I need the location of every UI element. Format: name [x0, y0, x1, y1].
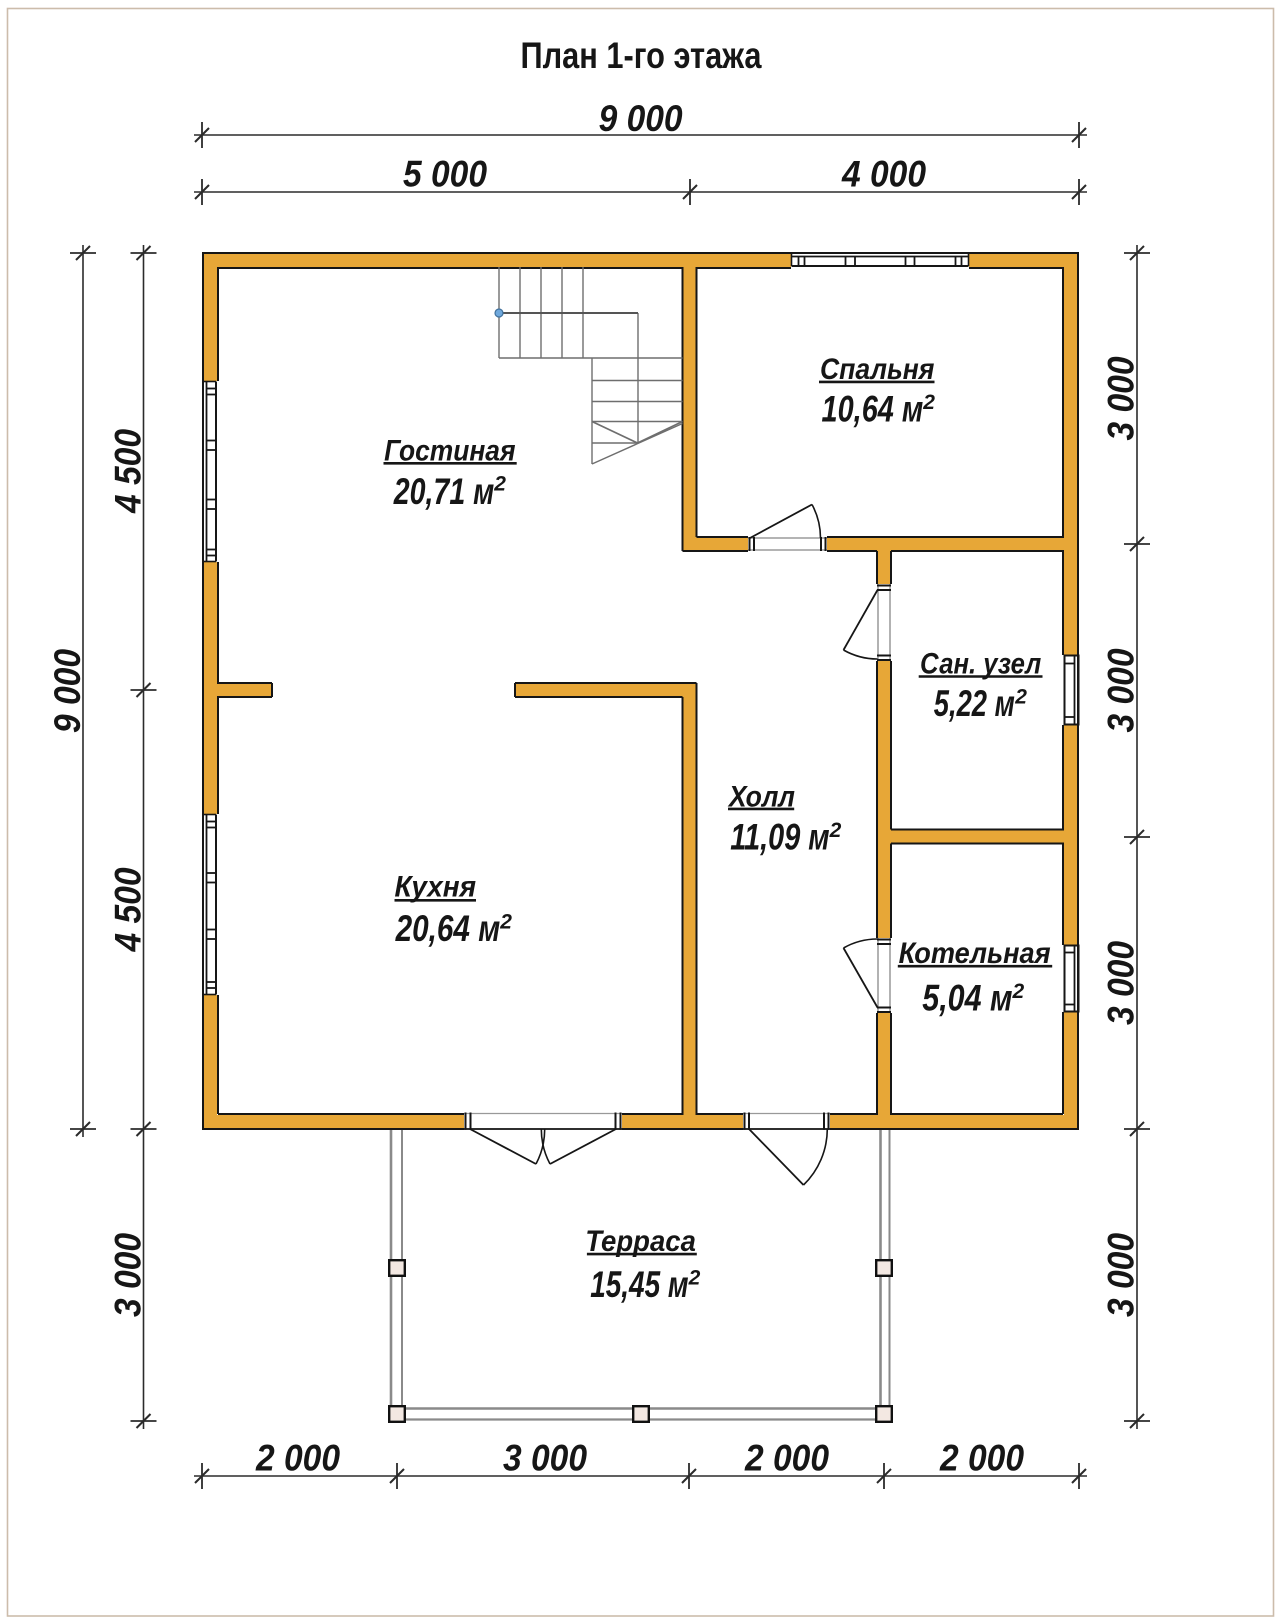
svg-text:3 000: 3 000 — [1101, 941, 1142, 1025]
svg-text:15,45 м: 15,45 м — [590, 1264, 688, 1305]
svg-text:9 000: 9 000 — [47, 649, 88, 733]
svg-text:Котельная: Котельная — [899, 937, 1051, 970]
svg-text:5,04 м: 5,04 м — [922, 977, 1012, 1018]
svg-text:2: 2 — [829, 819, 842, 842]
svg-text:20,71 м: 20,71 м — [393, 471, 494, 512]
svg-text:10,64 м: 10,64 м — [822, 389, 924, 430]
svg-text:4 500: 4 500 — [108, 429, 149, 514]
svg-text:3 000: 3 000 — [108, 1233, 149, 1317]
svg-text:5 000: 5 000 — [403, 154, 487, 195]
svg-text:2: 2 — [922, 391, 935, 414]
svg-text:20,64 м: 20,64 м — [395, 908, 500, 949]
svg-text:2: 2 — [493, 473, 506, 496]
svg-text:3 000: 3 000 — [503, 1438, 587, 1479]
svg-text:4 500: 4 500 — [108, 867, 149, 952]
svg-text:3 000: 3 000 — [1101, 648, 1142, 732]
svg-text:2: 2 — [1012, 980, 1025, 1003]
svg-text:2: 2 — [1014, 686, 1027, 709]
svg-text:2: 2 — [688, 1267, 701, 1290]
svg-text:Кухня: Кухня — [395, 870, 477, 903]
svg-text:4 000: 4 000 — [841, 154, 926, 195]
svg-text:2 000: 2 000 — [255, 1438, 340, 1479]
svg-text:11,09 м: 11,09 м — [730, 817, 829, 858]
svg-text:2 000: 2 000 — [744, 1438, 829, 1479]
svg-text:2 000: 2 000 — [939, 1438, 1024, 1479]
svg-text:9 000: 9 000 — [599, 98, 683, 139]
svg-text:3 000: 3 000 — [1101, 1233, 1142, 1317]
svg-text:5,22 м: 5,22 м — [934, 683, 1015, 724]
svg-text:2: 2 — [499, 911, 512, 934]
svg-text:План 1-го этажа: План 1-го этажа — [521, 35, 762, 76]
svg-text:3 000: 3 000 — [1101, 356, 1142, 440]
